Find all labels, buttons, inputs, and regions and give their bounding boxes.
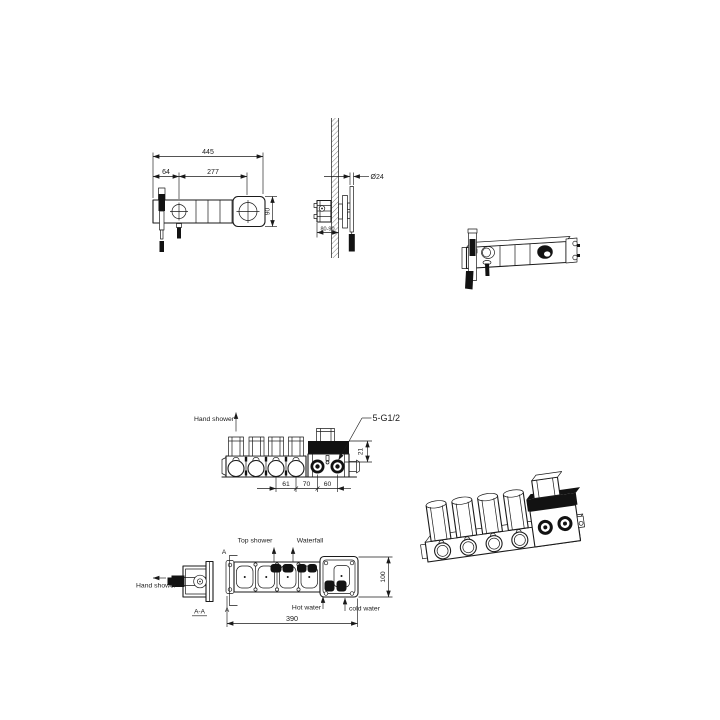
rough-in-top-view: A A Top shower Waterfall Hot water cold … (222, 538, 393, 628)
dim-bar-height: 90 (265, 208, 272, 216)
dim-length: 390 (286, 614, 298, 623)
hand-shower-flow-label: Hand shower (194, 413, 236, 432)
hand-shower-label: Hand shower (194, 416, 235, 423)
thermostatic-block-top (320, 557, 358, 598)
thread-callout-text: 5-G1/2 (373, 413, 401, 423)
valve-stems (229, 437, 304, 456)
hot-water-inlet (325, 581, 335, 592)
technical-drawing-page: 445 64 277 90 (0, 0, 720, 720)
section-view-aa: Hand shower A-A (136, 562, 213, 616)
dim-hand-shower-diameter: Ø24 (371, 174, 384, 181)
hand-shower-front (159, 188, 166, 252)
thermostatic-block (308, 429, 357, 478)
cold-water-label: cold water (349, 606, 381, 613)
front-view-trim: 445 64 277 90 (153, 149, 277, 252)
wall-section-hatch (332, 118, 339, 258)
dim-band: 21 (358, 448, 365, 456)
dim-handle-to-dial: 277 (207, 169, 219, 176)
hand-shower-label: Hand shower (136, 583, 177, 590)
dim-total-length: 445 (202, 149, 214, 156)
dim-end-to-handle: 64 (162, 169, 170, 176)
side-view-trim: Ø24 80-90 (314, 118, 384, 258)
dim-span-a: 61 (282, 481, 290, 488)
shower-valve-technical-drawing: 445 64 277 90 (0, 0, 720, 720)
dim-width: 100 (380, 571, 387, 583)
rough-in-front-view: Hand shower 5-G1/2 21 61 70 60 (194, 413, 400, 493)
perspective-view-trim (462, 229, 580, 290)
side-trim-and-hand-shower (343, 187, 355, 252)
dim-wall-depth: 80-90 (320, 227, 334, 233)
dim-span-c: 60 (324, 481, 332, 488)
perspective-view-rough-in (413, 469, 587, 562)
section-mark-top: A (222, 549, 227, 556)
section-title: A-A (194, 609, 206, 616)
waterfall-label: Waterfall (297, 538, 324, 545)
cold-water-inlet (337, 581, 347, 592)
hot-water-label: Hot water (292, 605, 322, 612)
end-bracket (566, 238, 580, 263)
top-shower-label: Top shower (238, 538, 273, 545)
dim-span-b: 70 (303, 481, 311, 488)
section-mark-bottom: A (225, 607, 230, 614)
dial-3d (538, 246, 553, 259)
